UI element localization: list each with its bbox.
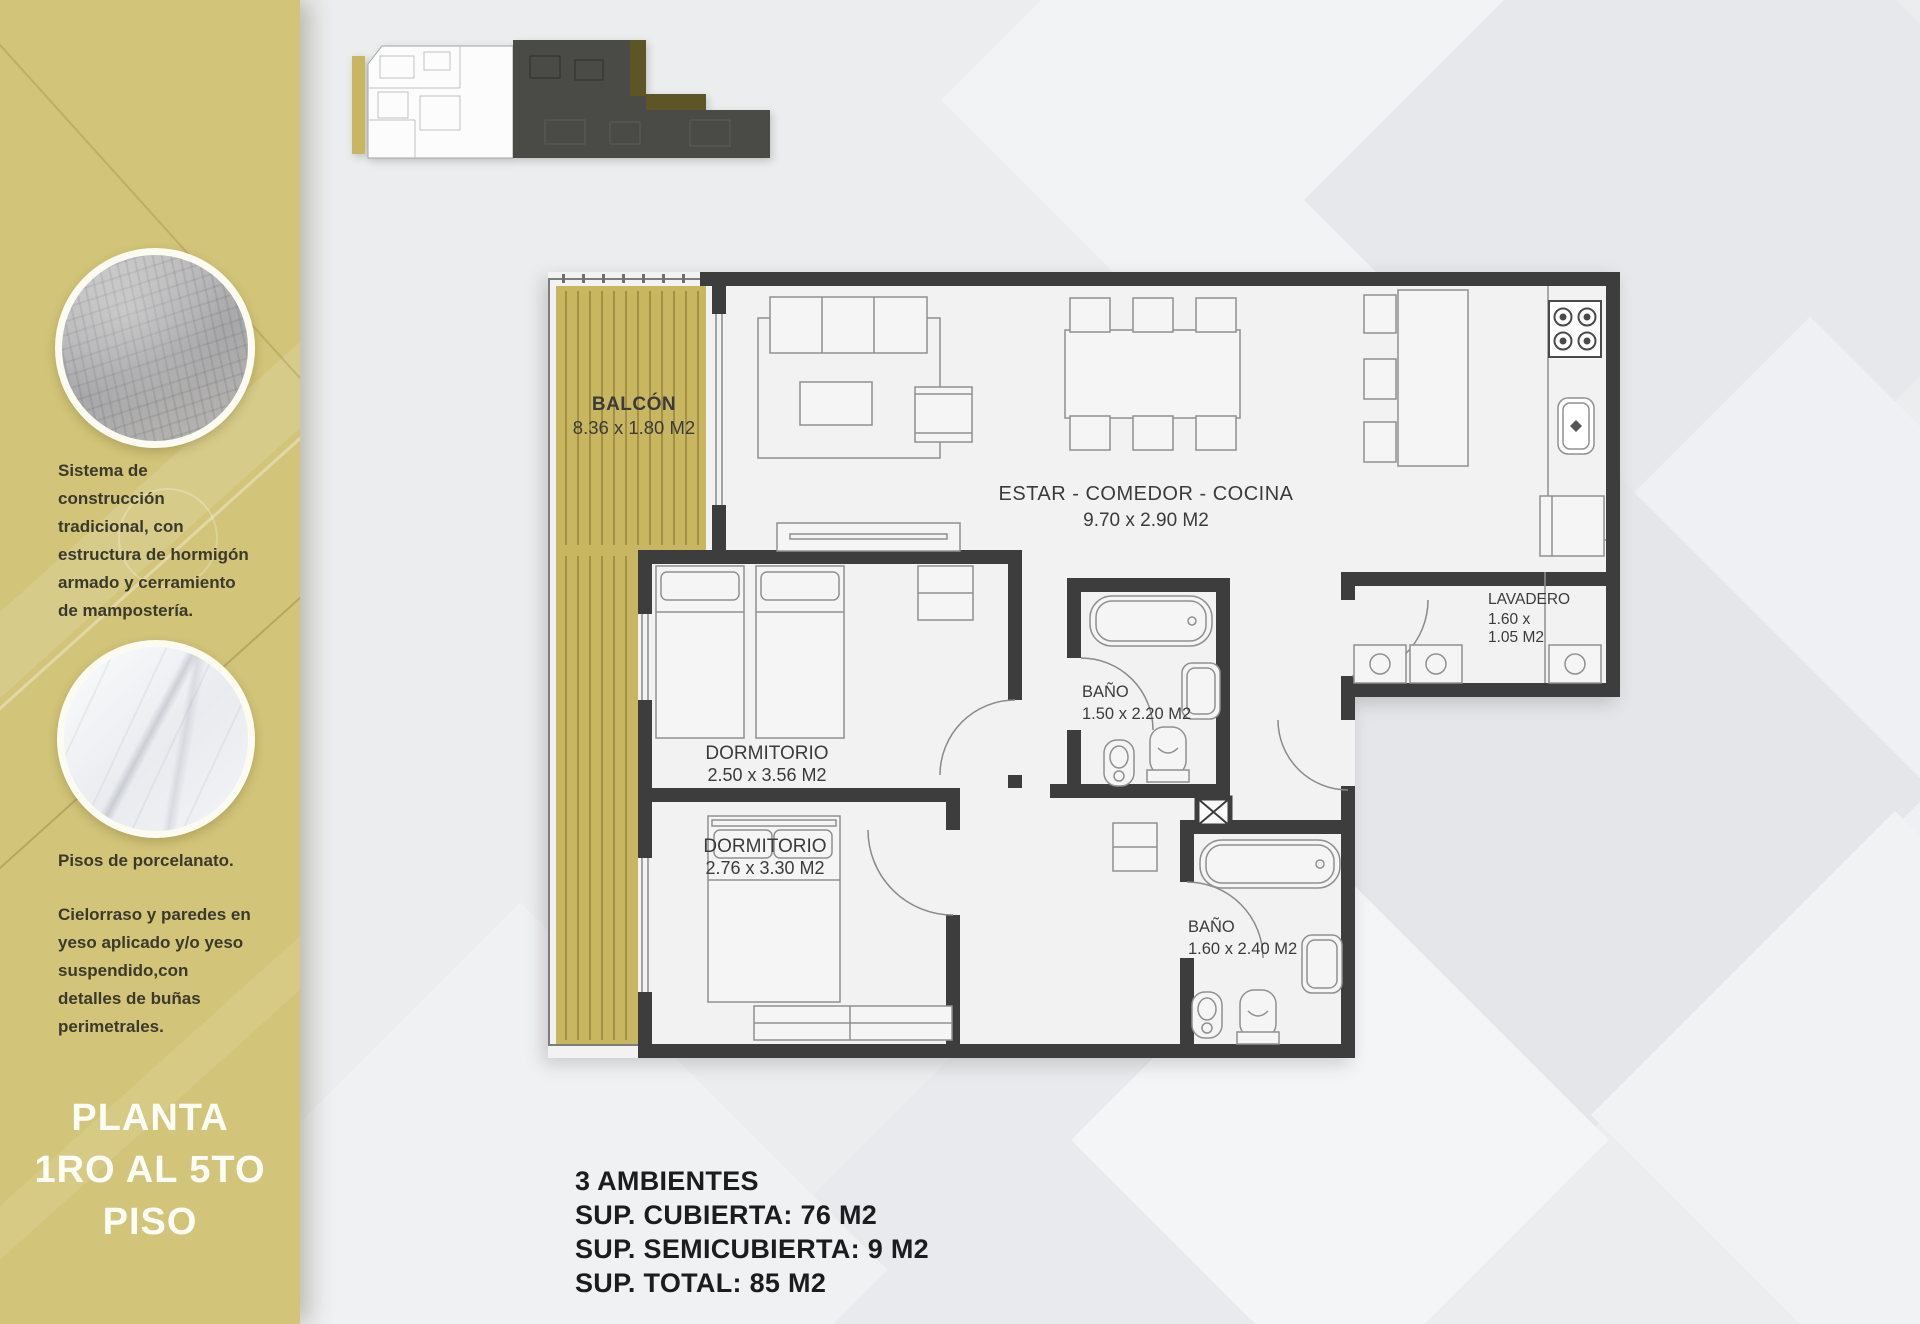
dining-chair (1133, 416, 1173, 450)
summary-cubierta: SUP. CUBIERTA: 76 M2 (575, 1198, 929, 1232)
porcelain-material-photo (57, 640, 255, 838)
laundry-sink (1549, 645, 1601, 683)
room-label-estar: ESTAR - COMEDOR - COCINA (999, 483, 1294, 505)
bidet (1192, 992, 1222, 1038)
room-label-dormitorio-2: DORMITORIO (703, 836, 826, 857)
floor-plan: BALCÓN 8.36 x 1.80 M2 ESTAR - COMEDOR - … (540, 260, 1650, 1070)
room-dims-bano-1: 1.50 x 2.20 M2 (1082, 705, 1191, 723)
dining-chair (1070, 298, 1110, 332)
sofa (770, 297, 927, 353)
stove (1549, 301, 1601, 357)
dining-chair (1196, 416, 1236, 450)
room-dims-estar: 9.70 x 2.90 M2 (1083, 510, 1209, 531)
key-plan-highlight-unit (352, 46, 513, 158)
room-dims-bano-2: 1.60 x 2.40 M2 (1188, 940, 1297, 958)
room-label-bano-1: BAÑO (1082, 681, 1129, 701)
dining-table (1065, 330, 1240, 418)
surface-summary: 3 AMBIENTES SUP. CUBIERTA: 76 M2 SUP. SE… (575, 1164, 929, 1300)
pillow (661, 572, 739, 600)
bathtub (1090, 596, 1212, 646)
room-dims-lavadero-1: 1.60 x (1488, 611, 1530, 628)
service-shaft (1197, 798, 1230, 826)
summary-total: SUP. TOTAL: 85 M2 (575, 1266, 929, 1300)
washing-machine (1354, 645, 1406, 683)
room-dims-dormitorio-2: 2.76 x 3.30 M2 (705, 858, 824, 878)
dining-chair (1070, 416, 1110, 450)
kitchen-bar (1398, 290, 1468, 466)
dining-chair (1196, 298, 1236, 332)
bar-stool (1364, 422, 1396, 462)
room-dims-dormitorio-1: 2.50 x 3.56 M2 (707, 765, 826, 785)
summary-semicubierta: SUP. SEMICUBIERTA: 9 M2 (575, 1232, 929, 1266)
flooring-text: Pisos de porcelanato. (58, 847, 256, 875)
sidebar: Sistema de construcción tradicional, con… (0, 0, 300, 1324)
dining-chair (1133, 298, 1173, 332)
coffee-table (800, 382, 872, 425)
room-label-lavadero: LAVADERO (1488, 591, 1570, 608)
ceiling-text: Cielorraso y paredes en yeso aplicado y/… (58, 901, 256, 1041)
bar-stool (1364, 295, 1396, 333)
room-label-bano-2: BAÑO (1188, 916, 1235, 936)
concrete-material-photo (55, 248, 255, 448)
floor-title: PLANTA 1RO AL 5TO PISO (0, 1092, 300, 1248)
pillow (761, 572, 839, 600)
flyer-page: Sistema de construcción tradicional, con… (0, 0, 1920, 1324)
bathtub (1200, 840, 1340, 888)
construction-system-text: Sistema de construcción tradicional, con… (58, 457, 256, 625)
room-label-dormitorio-1: DORMITORIO (705, 743, 828, 764)
floor-title-line: PISO (0, 1196, 300, 1248)
room-dims-balcon: 8.36 x 1.80 M2 (573, 417, 695, 438)
building-key-plan (285, 28, 785, 168)
floor-title-line: 1RO AL 5TO (0, 1144, 300, 1196)
room-dims-lavadero-2: 1.05 M2 (1488, 629, 1544, 646)
bidet (1104, 740, 1134, 786)
kitchen-cabinet (1540, 496, 1604, 556)
toilet (1150, 727, 1186, 775)
room-label-balcon: BALCÓN (592, 393, 676, 415)
summary-ambientes: 3 AMBIENTES (575, 1164, 929, 1198)
bar-stool (1364, 359, 1396, 399)
washing-machine (1410, 645, 1462, 683)
toilet (1240, 990, 1276, 1038)
floor-title-line: PLANTA (0, 1092, 300, 1144)
key-plan-other-unit (513, 40, 770, 158)
